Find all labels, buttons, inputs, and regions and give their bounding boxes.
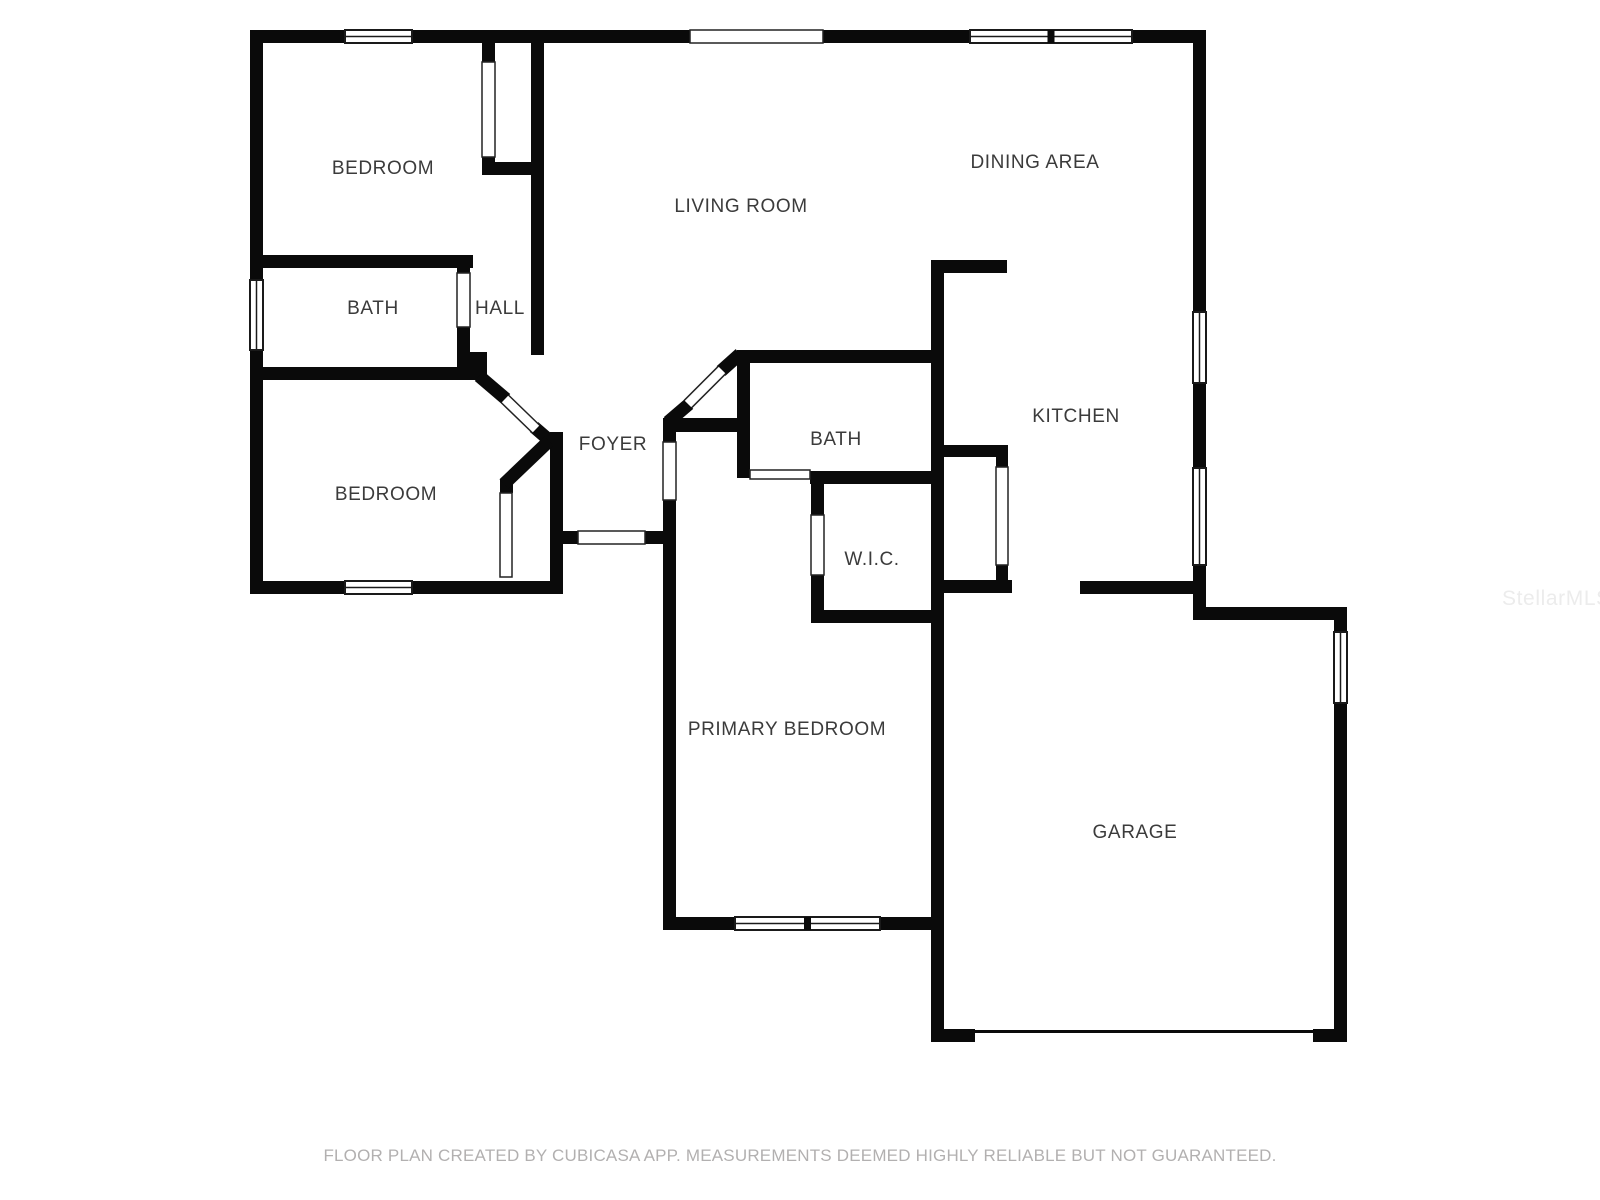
wall-segment xyxy=(531,43,544,355)
wall-segment xyxy=(737,350,944,363)
wall-segment xyxy=(811,484,824,515)
wall-segment xyxy=(737,355,750,478)
wall-segment xyxy=(1080,581,1206,594)
door-opening xyxy=(996,467,1008,565)
footer-disclaimer: FLOOR PLAN CREATED BY CUBICASA APP. MEAS… xyxy=(323,1146,1276,1166)
room-label-bath-1: BATH xyxy=(347,298,399,320)
door-opening xyxy=(663,442,676,500)
room-label-bedroom-1: BEDROOM xyxy=(332,158,434,180)
wall-segment xyxy=(931,260,1007,273)
door-opening xyxy=(690,30,823,43)
room-label-hall: HALL xyxy=(475,298,525,320)
room-label-bedroom-2: BEDROOM xyxy=(335,484,437,506)
wall-segment xyxy=(550,432,563,594)
door-opening xyxy=(578,531,645,544)
door-leaf xyxy=(688,370,722,404)
room-label-garage: GARAGE xyxy=(1093,822,1178,844)
wall-segment xyxy=(250,350,263,594)
wall-segment xyxy=(250,30,263,280)
wall-segment xyxy=(996,565,1008,581)
wall-segment xyxy=(811,610,944,623)
stellar-mls-watermark: StellarMLS xyxy=(1502,587,1600,611)
wall-segment xyxy=(412,581,563,594)
wall-segment xyxy=(663,917,735,930)
door-opening xyxy=(500,493,512,577)
door-leaf xyxy=(505,399,536,429)
wall-segment xyxy=(880,917,944,930)
wall-segment xyxy=(412,30,690,43)
window-divider xyxy=(804,917,811,930)
door-opening xyxy=(482,62,495,157)
wall-segment xyxy=(263,255,473,268)
wall-segment xyxy=(931,1029,975,1042)
floor-plan-drawing xyxy=(0,0,1600,1200)
wall-segment xyxy=(457,255,470,273)
room-label-bath-2: BATH xyxy=(810,429,862,451)
room-label-primary-bedroom: PRIMARY BEDROOM xyxy=(688,719,886,741)
wall-segment xyxy=(645,531,663,544)
wall-segment xyxy=(944,580,1012,593)
wall-segment xyxy=(944,445,1008,457)
room-label-living-room: LIVING ROOM xyxy=(674,196,807,218)
wall-segment-diagonal xyxy=(504,441,549,484)
garage-door-line xyxy=(975,1030,1313,1033)
wall-segment xyxy=(996,457,1008,467)
wall-segment xyxy=(1334,607,1347,632)
room-label-kitchen: KITCHEN xyxy=(1032,406,1120,428)
door-opening xyxy=(811,515,824,575)
wall-segment xyxy=(250,367,476,380)
room-label-foyer: FOYER xyxy=(579,434,647,456)
wall-segment xyxy=(1334,703,1347,1042)
wall-segment xyxy=(482,162,531,175)
wall-segment xyxy=(1193,383,1206,468)
wall-segment xyxy=(482,43,495,62)
room-label-dining-area: DINING AREA xyxy=(970,152,1099,174)
wall-segment xyxy=(823,30,970,43)
wall-segment xyxy=(810,471,944,484)
wall-segment xyxy=(250,30,345,43)
door-opening xyxy=(457,273,470,327)
wall-segment xyxy=(1193,30,1206,312)
wall-segment xyxy=(663,432,676,442)
wall-segment-diagonal xyxy=(479,376,506,399)
floor-plan-page: BEDROOMLIVING ROOMDINING AREABATHHALLBED… xyxy=(0,0,1600,1200)
wall-segment xyxy=(663,500,676,930)
room-label-wic: W.I.C. xyxy=(844,549,899,571)
wall-segment xyxy=(250,581,345,594)
wall-segment xyxy=(563,531,578,544)
door-opening xyxy=(750,470,810,479)
wall-segment xyxy=(1205,607,1347,620)
window-divider xyxy=(1048,30,1055,43)
wall-segment xyxy=(1313,1029,1347,1042)
